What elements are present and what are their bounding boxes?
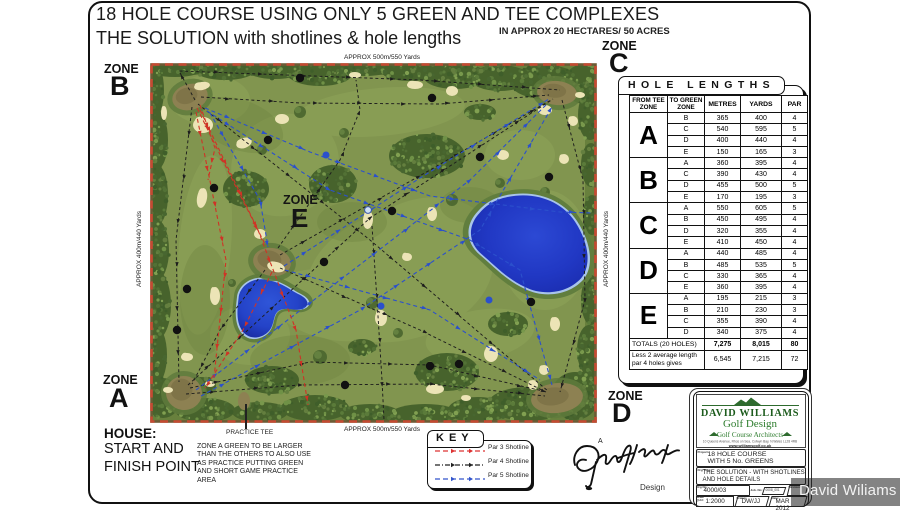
svg-text:Golf Course Architects: Golf Course Architects: [716, 431, 782, 439]
svg-text:10 Queens Avenue, Rhos on Sea,: 10 Queens Avenue, Rhos on Sea, Colwyn Ba…: [702, 439, 796, 443]
svg-text:Golf Design: Golf Design: [722, 418, 777, 430]
